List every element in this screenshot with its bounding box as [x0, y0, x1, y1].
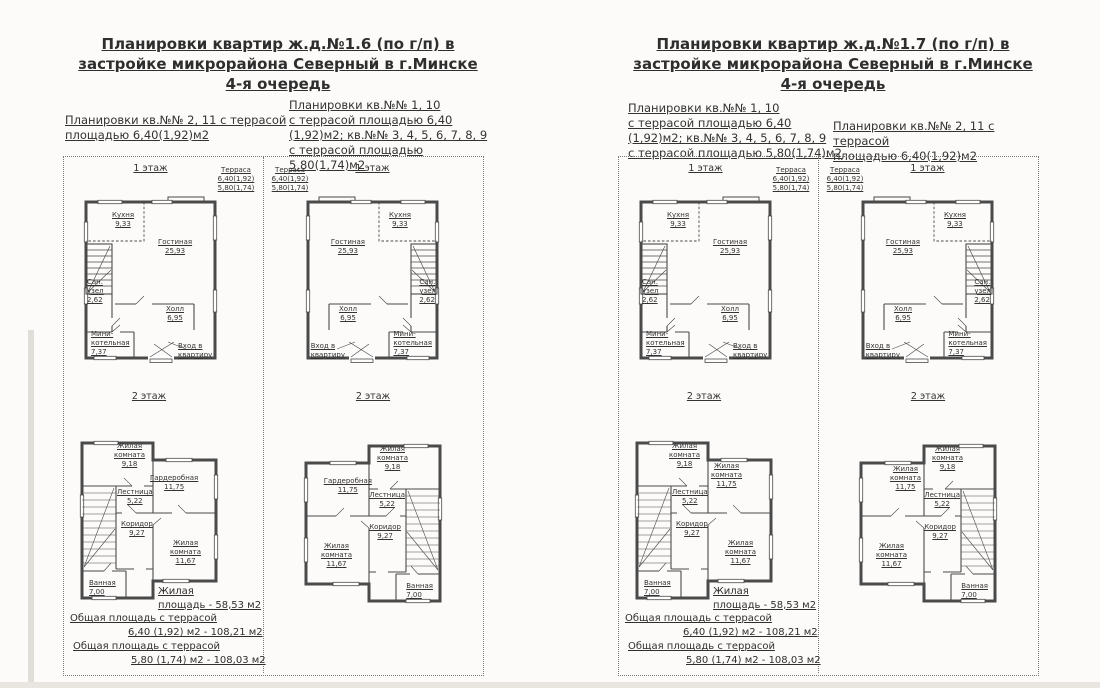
scan-edge-artifact [28, 330, 34, 688]
room-label-bedroom-9-18: Жилаякомната9,18 [377, 445, 408, 471]
living-area-summary: Жилаяплощадь - 58,53 м2 [713, 585, 816, 612]
total-area-summary-1: Общая площадь с террасой [625, 612, 772, 626]
room-label-stairs: Лестница5,22 [369, 491, 405, 509]
floor-2-header: 2 этаж [302, 391, 444, 402]
title-line: застройке микрорайона Северный в г.Минск… [613, 54, 1053, 74]
room-label-entrance: Вход вквартиру [866, 342, 900, 360]
room-label-boiler: Мини-котельная7,37 [91, 330, 130, 356]
terrace-label: Терраса6,40(1,92)5,80(1,74) [213, 166, 259, 193]
total-area-summary-1: Общая площадь с террасой [70, 612, 217, 626]
room-label-bedroom-9-18: Жилаякомната9,18 [669, 442, 700, 468]
floor-1-header: 1 этаж [304, 163, 441, 174]
floor-2-header: 2 этаж [633, 391, 775, 402]
room-label-boiler: Мини-котельная7,37 [948, 330, 987, 356]
plan-floor1-right-unit: Кухня9,33 Гостиная25,93 Сан.узел2,62 Хол… [859, 192, 996, 364]
title-line: 4-я очередь [58, 74, 498, 94]
terrace-label: Терраса6,40(1,92)5,80(1,74) [768, 166, 814, 193]
terrace-label: Терраса6,40(1,92)5,80(1,74) [267, 166, 313, 193]
room-label-boiler: Мини-котельная7,37 [393, 330, 432, 356]
title-line: Планировки квартир ж.д.№1.7 (по г/п) в [613, 34, 1053, 54]
room-label-entrance: Вход вквартиру [178, 342, 212, 360]
room-label-bedroom-9-18: Жилаякомната9,18 [932, 445, 963, 471]
room-label-entrance: Вход вквартиру [311, 342, 345, 360]
unit-separator [818, 157, 819, 673]
sheet-zhd-1-7: Планировки квартир ж.д.№1.7 (по г/п) в з… [613, 0, 1053, 688]
total-area-summary-2: Общая площадь с террасой [628, 640, 775, 654]
room-label-bedroom-11-75: Жилаякомната11,75 [711, 462, 742, 488]
room-label-bedroom-11-67: Жилаякомната11,67 [321, 542, 352, 568]
plan-floor1-left-unit: Кухня9,33 Гостиная25,93 Сан.узел2,62 Хол… [637, 192, 774, 364]
total-area-value-2: 5,80 (1,74) м2 - 108,03 м2 [686, 654, 821, 668]
room-label-hall: Холл6,95 [339, 305, 357, 323]
floor-2-header: 2 этаж [78, 391, 220, 402]
total-area-value-2: 5,80 (1,74) м2 - 108,03 м2 [131, 654, 266, 668]
terrace-label: Терраса6,40(1,92)5,80(1,74) [822, 166, 868, 193]
room-label-boiler: Мини-котельная7,37 [646, 330, 685, 356]
living-area-summary: Жилаяплощадь - 58,53 м2 [158, 585, 261, 612]
room-label-corridor: Коридор9,27 [369, 523, 401, 541]
sheet-zhd-1-6: Планировки квартир ж.д.№1.6 (по г/п) в з… [58, 0, 498, 688]
floor-1-header: 1 этаж [637, 163, 774, 174]
room-label-entrance: Вход вквартиру [733, 342, 767, 360]
room-label-stairs: Лестница5,22 [117, 488, 153, 506]
room-label-bath: Ванная7,00 [89, 579, 116, 597]
plan-floor2-right-unit: Жилаякомната9,18 Гардеробная11,75 Лестни… [302, 436, 444, 611]
note-apartments-1-10: Планировки кв.№№ 1, 10 с террасой площад… [628, 101, 842, 161]
plan-floor1-right-unit: Кухня9,33 Гостиная25,93 Сан.узел2,62 Хол… [304, 192, 441, 364]
title-line: 4-я очередь [613, 74, 1053, 94]
room-label-bedroom-11-67: Жилаякомната11,67 [725, 539, 756, 565]
room-label-kitchen: Кухня9,33 [389, 211, 411, 229]
room-label-corridor: Коридор9,27 [121, 520, 153, 538]
unit-separator [263, 157, 264, 673]
room-label-corridor: Коридор9,27 [924, 523, 956, 541]
room-label-wardrobe: Гардеробная11,75 [150, 474, 198, 492]
room-label-hall: Холл6,95 [721, 305, 739, 323]
floor-1-header: 1 этаж [82, 163, 219, 174]
room-label-living: Гостиная25,93 [331, 238, 365, 256]
room-label-bedroom-9-18: Жилаякомната9,18 [114, 442, 145, 468]
total-area-summary-2: Общая площадь с террасой [73, 640, 220, 654]
room-label-wc: Сан.узел2,62 [87, 278, 104, 304]
room-label-kitchen: Кухня9,33 [944, 211, 966, 229]
room-label-kitchen: Кухня9,33 [112, 211, 134, 229]
total-area-value-1: 6,40 (1,92) м2 - 108,21 м2 [128, 626, 263, 640]
room-label-living: Гостиная25,93 [886, 238, 920, 256]
total-area-value-1: 6,40 (1,92) м2 - 108,21 м2 [683, 626, 818, 640]
room-label-bath: Ванная7,00 [644, 579, 671, 597]
plan-floor2-left-unit: Жилаякомната9,18 Жилаякомната11,75 Лестн… [633, 433, 775, 608]
page-title: Планировки квартир ж.д.№1.6 (по г/п) в з… [58, 34, 498, 94]
room-label-stairs: Лестница5,22 [672, 488, 708, 506]
room-label-kitchen: Кухня9,33 [667, 211, 689, 229]
room-label-bedroom-11-67: Жилаякомната11,67 [876, 542, 907, 568]
room-label-bedroom-11-75: Жилаякомната11,75 [890, 465, 921, 491]
room-label-wc: Сан.узел2,62 [642, 278, 659, 304]
plan-floor1-left-unit: Кухня9,33 Гостиная25,93 Сан.узел2,62 Хол… [82, 192, 219, 364]
room-label-hall: Холл6,95 [166, 305, 184, 323]
room-label-corridor: Коридор9,27 [676, 520, 708, 538]
room-label-wc: Сан.узел2,62 [974, 278, 991, 304]
note-apartments-2-11: Планировки кв.№№ 2, 11 с террасой площад… [65, 113, 286, 143]
room-label-living: Гостиная25,93 [713, 238, 747, 256]
room-label-wardrobe: Гардеробная11,75 [324, 477, 372, 495]
plan-floor2-left-unit: Жилаякомната9,18 Гардеробная11,75 Лестни… [78, 433, 220, 608]
room-label-bedroom-11-67: Жилаякомната11,67 [170, 539, 201, 565]
title-line: Планировки квартир ж.д.№1.6 (по г/п) в [58, 34, 498, 54]
room-label-hall: Холл6,95 [894, 305, 912, 323]
scanned-sheet: Планировки квартир ж.д.№1.6 (по г/п) в з… [0, 0, 1100, 688]
plan-floor2-right-unit: Жилаякомната9,18 Жилаякомната11,75 Лестн… [857, 436, 999, 611]
title-line: застройке микрорайона Северный в г.Минск… [58, 54, 498, 74]
floor-1-header: 1 этаж [859, 163, 996, 174]
room-label-wc: Сан.узел2,62 [419, 278, 436, 304]
room-label-bath: Ванная7,00 [406, 582, 433, 600]
floor-2-header: 2 этаж [857, 391, 999, 402]
page-title: Планировки квартир ж.д.№1.7 (по г/п) в з… [613, 34, 1053, 94]
room-label-stairs: Лестница5,22 [924, 491, 960, 509]
room-label-living: Гостиная25,93 [158, 238, 192, 256]
room-label-bath: Ванная7,00 [961, 582, 988, 600]
